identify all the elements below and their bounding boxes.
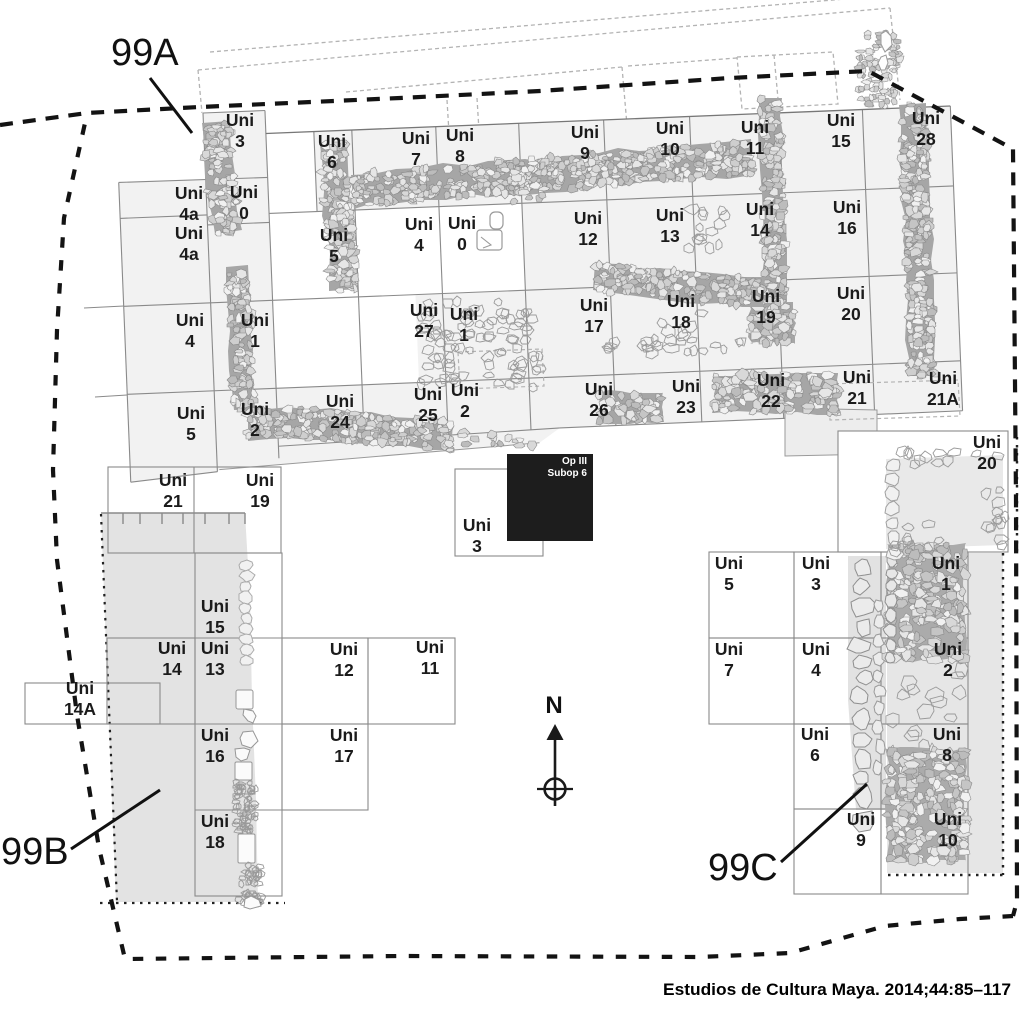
svg-text:Uni: Uni: [318, 131, 346, 151]
svg-text:9: 9: [580, 143, 590, 163]
svg-text:21A: 21A: [927, 389, 959, 409]
svg-text:7: 7: [724, 660, 734, 680]
svg-text:Uni: Uni: [574, 208, 602, 228]
svg-text:12: 12: [334, 660, 354, 680]
svg-text:Uni: Uni: [934, 639, 962, 659]
svg-text:19: 19: [250, 491, 270, 511]
svg-text:15: 15: [205, 617, 225, 637]
svg-text:Uni: Uni: [158, 638, 186, 658]
svg-text:24: 24: [330, 412, 350, 432]
svg-text:26: 26: [589, 400, 609, 420]
svg-text:Uni: Uni: [330, 725, 358, 745]
svg-text:Uni: Uni: [230, 182, 258, 202]
svg-text:Uni: Uni: [201, 638, 229, 658]
svg-text:Uni: Uni: [757, 370, 785, 390]
svg-text:Subop 6: Subop 6: [548, 468, 588, 479]
svg-text:14A: 14A: [64, 699, 96, 719]
svg-text:Uni: Uni: [410, 300, 438, 320]
svg-text:1: 1: [459, 325, 469, 345]
svg-text:13: 13: [660, 226, 680, 246]
svg-text:Uni: Uni: [571, 122, 599, 142]
svg-text:25: 25: [418, 405, 438, 425]
svg-text:14: 14: [162, 659, 182, 679]
svg-text:10: 10: [938, 830, 958, 850]
svg-text:Uni: Uni: [934, 809, 962, 829]
svg-text:99C: 99C: [708, 847, 778, 889]
svg-text:Uni: Uni: [201, 725, 229, 745]
svg-text:1: 1: [941, 574, 951, 594]
svg-text:Uni: Uni: [463, 515, 491, 535]
svg-text:5: 5: [186, 424, 196, 444]
svg-text:Uni: Uni: [414, 384, 442, 404]
svg-text:N: N: [545, 692, 562, 719]
svg-text:0: 0: [457, 234, 467, 254]
svg-text:Uni: Uni: [450, 304, 478, 324]
svg-text:Uni: Uni: [201, 596, 229, 616]
svg-text:Uni: Uni: [580, 295, 608, 315]
svg-text:Uni: Uni: [175, 183, 203, 203]
svg-text:Uni: Uni: [201, 811, 229, 831]
svg-text:4: 4: [811, 660, 821, 680]
svg-text:99A: 99A: [111, 32, 179, 74]
svg-text:19: 19: [756, 307, 776, 327]
svg-text:18: 18: [671, 312, 691, 332]
svg-text:Uni: Uni: [320, 225, 348, 245]
svg-text:3: 3: [811, 574, 821, 594]
svg-text:27: 27: [414, 321, 433, 341]
svg-text:21: 21: [847, 388, 867, 408]
svg-text:0: 0: [239, 203, 249, 223]
svg-text:Uni: Uni: [827, 110, 855, 130]
svg-text:Uni: Uni: [912, 108, 940, 128]
svg-text:Uni: Uni: [451, 380, 479, 400]
svg-text:Uni: Uni: [752, 286, 780, 306]
svg-text:3: 3: [472, 536, 482, 556]
svg-text:99B: 99B: [1, 831, 69, 873]
svg-text:13: 13: [205, 659, 225, 679]
svg-text:Uni: Uni: [833, 197, 861, 217]
svg-text:Uni: Uni: [448, 213, 476, 233]
svg-text:10: 10: [660, 139, 680, 159]
svg-text:Uni: Uni: [177, 403, 205, 423]
svg-text:1: 1: [250, 331, 260, 351]
svg-text:Uni: Uni: [246, 470, 274, 490]
svg-text:Uni: Uni: [330, 639, 358, 659]
svg-text:5: 5: [724, 574, 734, 594]
svg-text:Uni: Uni: [746, 199, 774, 219]
svg-text:4: 4: [185, 331, 195, 351]
svg-text:Uni: Uni: [667, 291, 695, 311]
svg-text:Uni: Uni: [656, 205, 684, 225]
svg-text:Uni: Uni: [66, 678, 94, 698]
svg-text:8: 8: [455, 146, 465, 166]
svg-text:Uni: Uni: [802, 553, 830, 573]
svg-text:Uni: Uni: [402, 128, 430, 148]
svg-text:4a: 4a: [179, 204, 199, 224]
svg-text:20: 20: [841, 304, 861, 324]
svg-text:Estudios de Cultura Maya. 2014: Estudios de Cultura Maya. 2014;44:85–117: [663, 981, 1011, 999]
svg-text:Uni: Uni: [416, 637, 444, 657]
svg-text:21: 21: [163, 491, 183, 511]
svg-text:18: 18: [205, 832, 225, 852]
svg-text:4a: 4a: [179, 244, 199, 264]
svg-text:2: 2: [943, 660, 953, 680]
svg-text:Uni: Uni: [446, 125, 474, 145]
svg-text:12: 12: [578, 229, 598, 249]
svg-text:6: 6: [327, 152, 337, 172]
svg-text:Uni: Uni: [159, 470, 187, 490]
svg-text:2: 2: [460, 401, 470, 421]
svg-text:22: 22: [761, 391, 781, 411]
svg-text:Uni: Uni: [326, 391, 354, 411]
svg-text:Uni: Uni: [932, 553, 960, 573]
svg-text:2: 2: [250, 420, 260, 440]
svg-text:Op III: Op III: [562, 456, 587, 467]
svg-text:Uni: Uni: [715, 553, 743, 573]
svg-text:28: 28: [916, 129, 936, 149]
svg-text:3: 3: [235, 131, 245, 151]
svg-text:Uni: Uni: [801, 724, 829, 744]
svg-text:Uni: Uni: [226, 110, 254, 130]
svg-text:20: 20: [977, 453, 997, 473]
svg-text:Uni: Uni: [585, 379, 613, 399]
svg-text:Uni: Uni: [176, 310, 204, 330]
svg-text:Uni: Uni: [973, 432, 1001, 452]
svg-text:11: 11: [746, 138, 765, 158]
svg-text:11: 11: [421, 658, 440, 678]
svg-text:Uni: Uni: [241, 399, 269, 419]
svg-text:8: 8: [942, 745, 952, 765]
svg-text:23: 23: [676, 397, 696, 417]
svg-text:15: 15: [831, 131, 851, 151]
svg-text:17: 17: [334, 746, 353, 766]
svg-text:Uni: Uni: [656, 118, 684, 138]
svg-text:7: 7: [411, 149, 421, 169]
svg-text:4: 4: [414, 235, 424, 255]
svg-text:Uni: Uni: [837, 283, 865, 303]
svg-text:Uni: Uni: [843, 367, 871, 387]
svg-text:Uni: Uni: [175, 223, 203, 243]
svg-text:16: 16: [837, 218, 857, 238]
svg-text:Uni: Uni: [672, 376, 700, 396]
svg-text:17: 17: [584, 316, 603, 336]
svg-text:Uni: Uni: [241, 310, 269, 330]
svg-text:Uni: Uni: [405, 214, 433, 234]
svg-text:14: 14: [750, 220, 770, 240]
svg-text:Uni: Uni: [741, 117, 769, 137]
svg-text:Uni: Uni: [715, 639, 743, 659]
svg-text:Uni: Uni: [933, 724, 961, 744]
svg-text:5: 5: [329, 246, 339, 266]
svg-text:6: 6: [810, 745, 820, 765]
svg-text:Uni: Uni: [847, 809, 875, 829]
svg-text:Uni: Uni: [802, 639, 830, 659]
svg-text:16: 16: [205, 746, 225, 766]
svg-text:9: 9: [856, 830, 866, 850]
svg-text:Uni: Uni: [929, 368, 957, 388]
